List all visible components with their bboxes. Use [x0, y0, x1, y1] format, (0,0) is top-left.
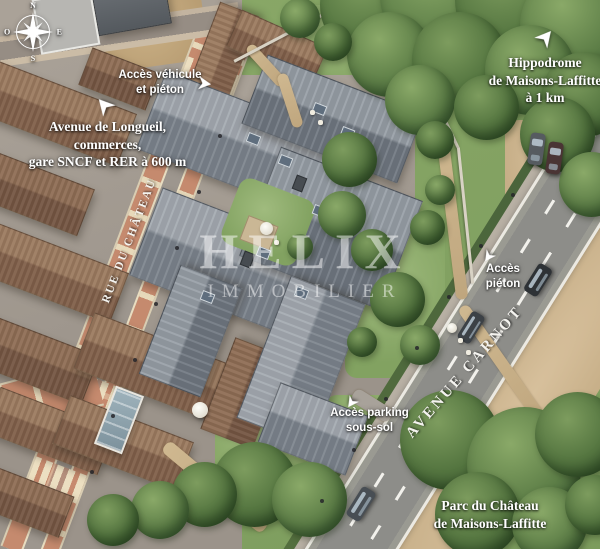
parasol — [260, 222, 273, 235]
tree — [416, 121, 454, 159]
tree — [318, 191, 366, 239]
bollard-dot — [133, 358, 137, 362]
compass-label-east: E — [57, 28, 62, 37]
tree — [410, 210, 445, 245]
compass-label-north: N — [30, 1, 36, 10]
compass-rose-icon: N E S O — [2, 1, 64, 63]
bollard-dot — [90, 470, 94, 474]
bollard-dot — [175, 246, 179, 250]
tree — [400, 325, 440, 365]
bollard-dot — [511, 193, 515, 197]
tree — [314, 23, 352, 61]
bollard-dot — [384, 397, 388, 401]
callout-line: sous-sol — [346, 422, 393, 434]
callout-line: à 1 km — [525, 90, 564, 105]
callout-line: et piéton — [136, 84, 184, 96]
parasol — [447, 323, 457, 333]
cursor-right-icon — [196, 75, 213, 92]
bollard-dot — [218, 134, 222, 138]
bollard-dot — [197, 190, 201, 194]
bollard-dot — [154, 302, 158, 306]
bollard-dot — [447, 295, 451, 299]
bollard-dot — [415, 346, 419, 350]
bollard-dot — [352, 448, 356, 452]
callout-acces-pieton: Accès piéton — [472, 262, 534, 291]
compass-label-west: O — [4, 28, 10, 37]
callout-line: Accès — [486, 263, 520, 275]
bollard-dot — [479, 244, 483, 248]
tree — [322, 132, 377, 187]
tree — [287, 234, 313, 260]
callout-hippodrome: Hippodrome de Maisons-Laffitte à 1 km — [475, 54, 600, 107]
parasol — [192, 402, 208, 418]
callout-line: Accès véhicule — [118, 69, 201, 81]
callout-line: Accès parking — [330, 407, 409, 419]
callout-line: Hippodrome — [508, 55, 581, 70]
tree — [347, 327, 377, 357]
callout-line: de Maisons-Laffitte — [489, 73, 600, 88]
tree — [370, 272, 425, 327]
callout-line: gare SNCF et RER à 600 m — [29, 154, 186, 169]
callout-line: piéton — [486, 278, 521, 290]
callout-parc: Parc du Château de Maisons-Laffitte — [410, 497, 570, 532]
compass-label-south: S — [31, 54, 35, 63]
tree — [351, 229, 393, 271]
callout-line: Avenue de Longueil, commerces, — [49, 119, 166, 152]
tree — [131, 481, 189, 539]
garden-furniture — [458, 338, 463, 343]
aerial-site-plan: HELIX IMMOBILIER RUE DU CHÂTEAU AVENUE C… — [0, 0, 600, 549]
garden-furniture — [274, 240, 279, 245]
bollard-dot — [111, 414, 115, 418]
garden-furniture — [318, 120, 323, 125]
garden-furniture — [310, 110, 315, 115]
tree — [272, 462, 347, 537]
callout-acces-parking: Accès parking sous-sol — [312, 406, 427, 435]
callout-avenue-longueil: Avenue de Longueil, commerces, gare SNCF… — [20, 118, 195, 171]
tree — [87, 494, 139, 546]
callout-line: de Maisons-Laffitte — [434, 516, 547, 531]
callout-line: Parc du Château — [441, 498, 538, 513]
tree — [425, 175, 455, 205]
compass-ring — [16, 15, 50, 49]
bollard-dot — [320, 499, 324, 503]
